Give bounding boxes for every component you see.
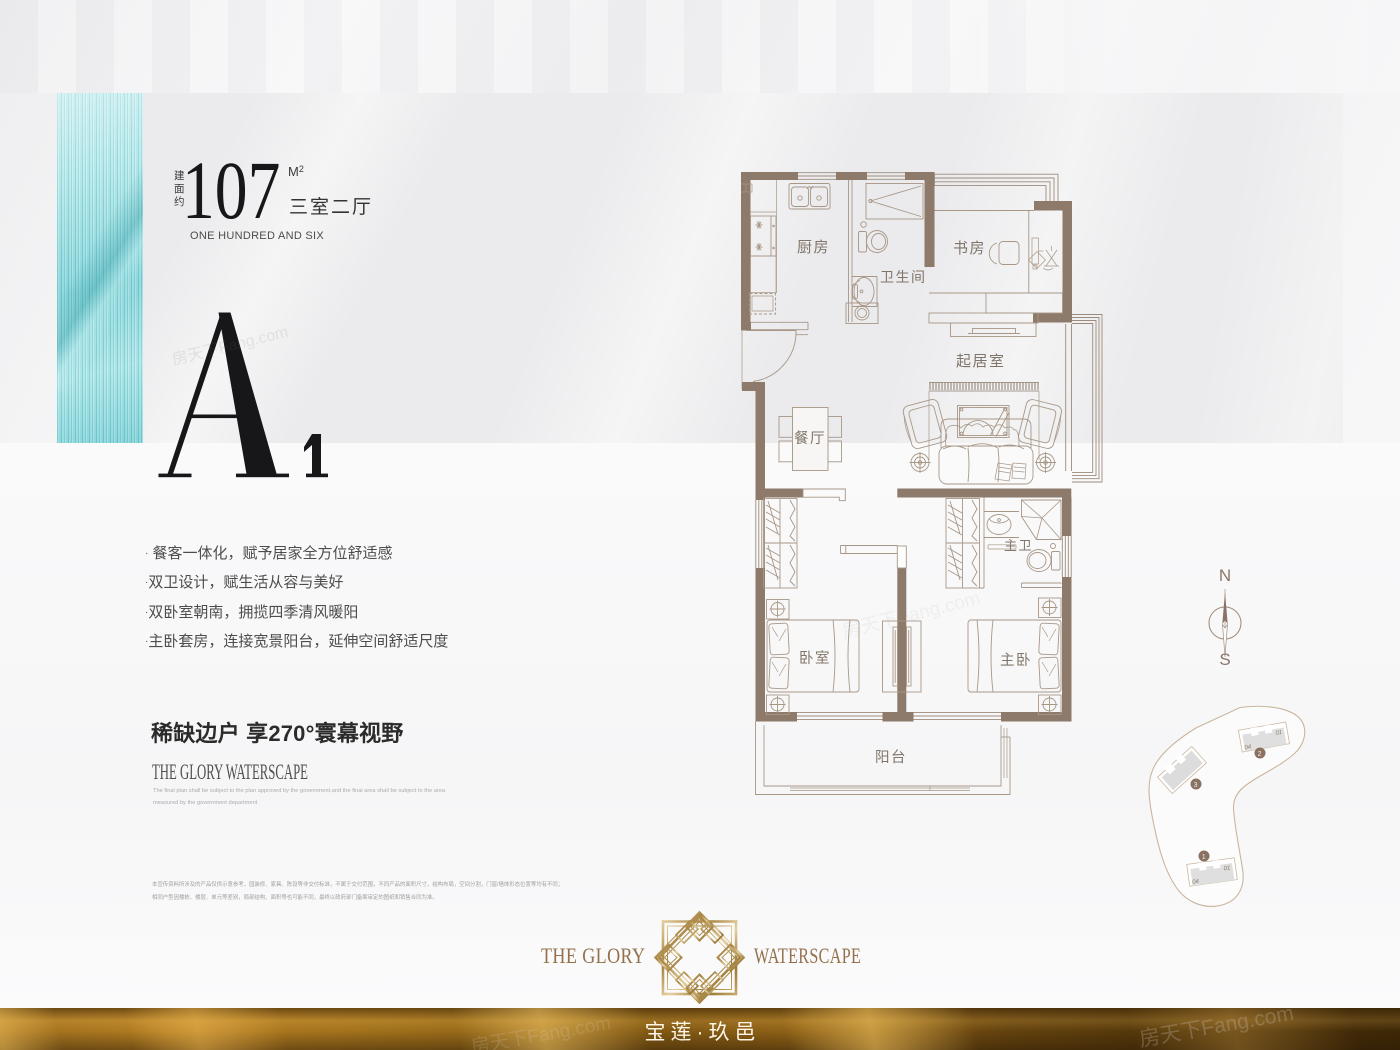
svg-text:1: 1	[1202, 854, 1206, 861]
svg-text:餐厅: 餐厅	[794, 430, 826, 447]
svg-text:01: 01	[1223, 865, 1230, 872]
svg-text:卧室: 卧室	[799, 650, 831, 667]
svg-text:主卧: 主卧	[1000, 652, 1032, 669]
svg-text:书房: 书房	[953, 240, 986, 257]
svg-text:阳台: 阳台	[875, 749, 907, 766]
svg-text:2: 2	[1258, 751, 1262, 758]
svg-text:主卫: 主卫	[1004, 538, 1033, 553]
svg-text:起居室: 起居室	[956, 353, 1006, 370]
svg-text:卫生间: 卫生间	[880, 269, 927, 285]
svg-text:01: 01	[1275, 730, 1283, 737]
svg-text:厨房: 厨房	[797, 239, 830, 256]
svg-text:3: 3	[1194, 782, 1198, 789]
